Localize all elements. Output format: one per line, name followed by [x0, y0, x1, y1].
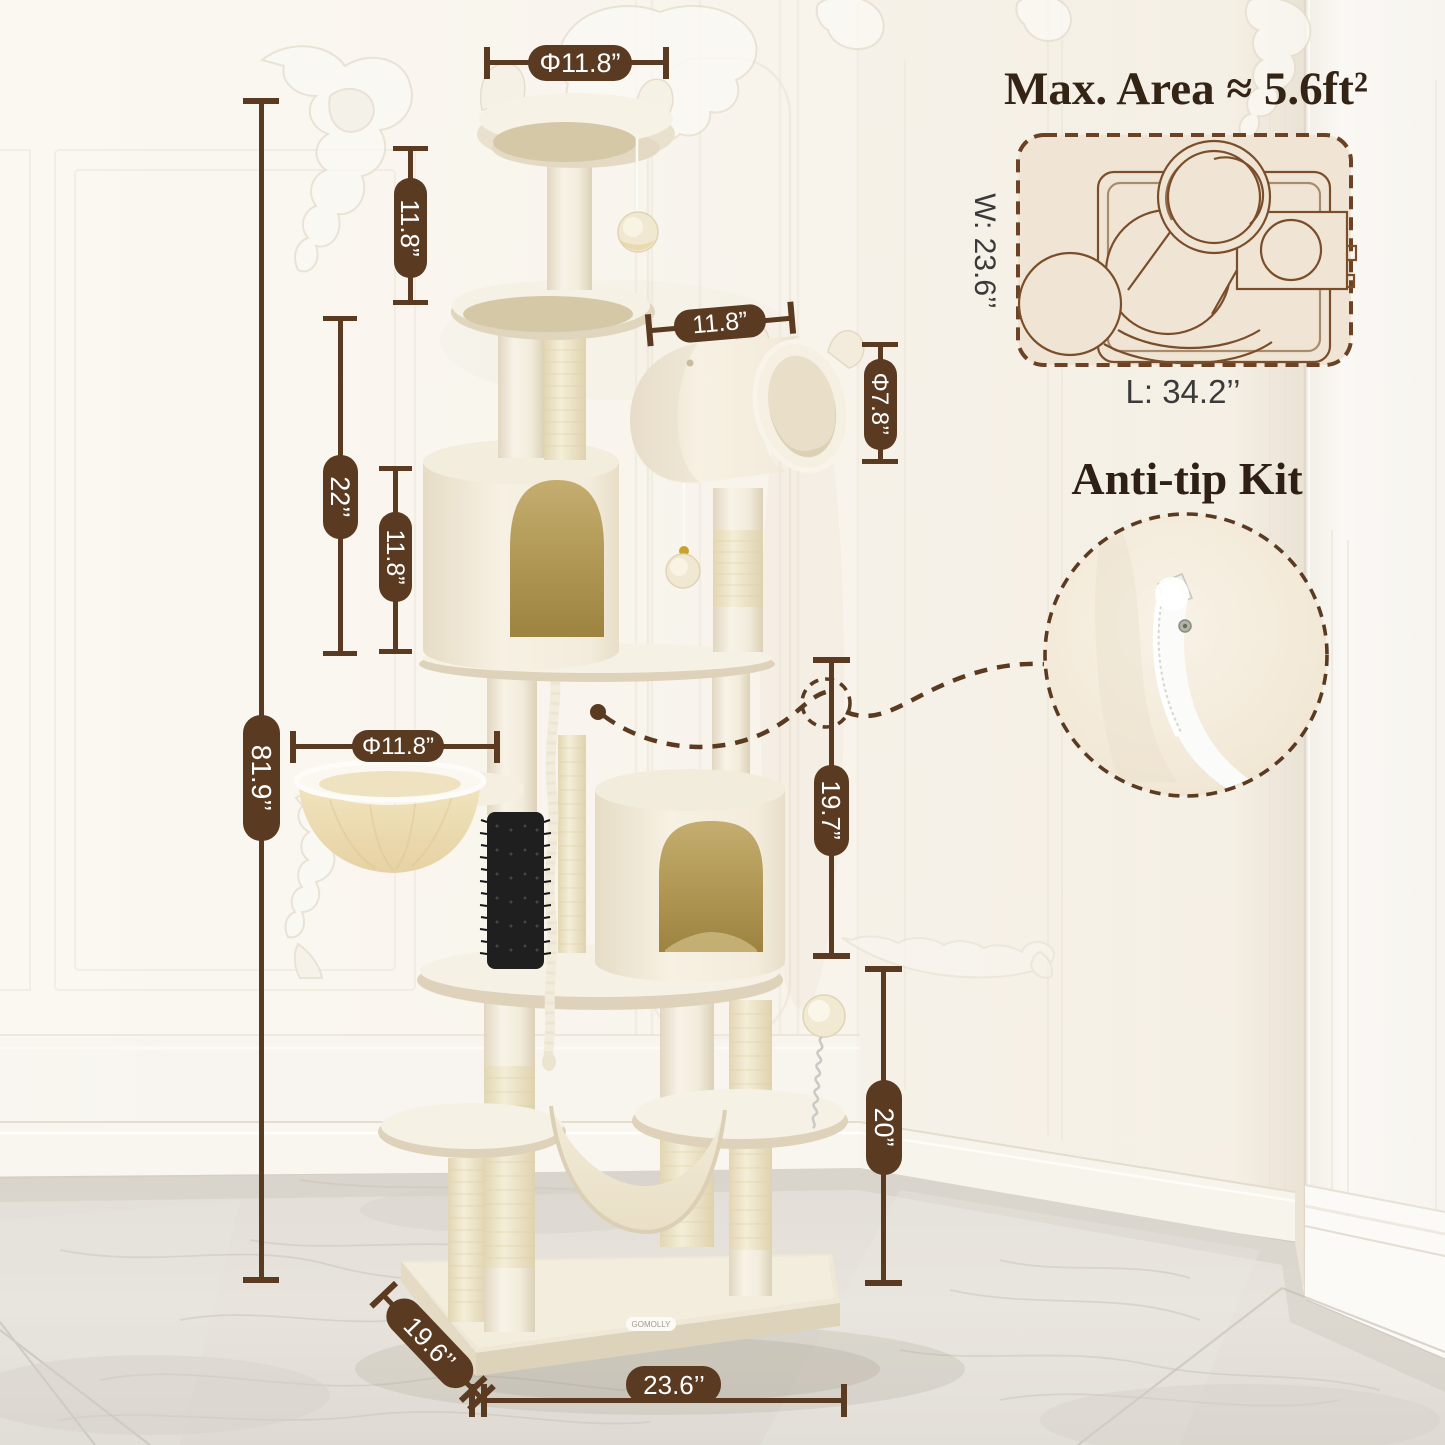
svg-text:23.6’’: 23.6’’: [643, 1370, 705, 1400]
svg-text:Φ11.8”: Φ11.8”: [539, 48, 620, 78]
svg-text:20”: 20”: [869, 1107, 899, 1146]
svg-text:Max. Area ≈ 5.6ft²: Max. Area ≈ 5.6ft²: [1004, 63, 1368, 115]
svg-text:L: 34.2’’: L: 34.2’’: [1126, 373, 1241, 410]
svg-text:19.7”: 19.7”: [816, 780, 846, 839]
svg-text:W: 23.6’’: W: 23.6’’: [968, 193, 1001, 309]
svg-text:11.8”: 11.8”: [395, 199, 425, 256]
svg-text:Φ7.8’’: Φ7.8’’: [866, 373, 893, 436]
svg-text:GOMOLLY: GOMOLLY: [632, 1320, 672, 1329]
svg-text:22’’: 22’’: [325, 476, 355, 518]
svg-text:11.8”: 11.8”: [691, 307, 748, 340]
svg-text:81.9’’: 81.9’’: [246, 745, 277, 811]
svg-text:11.8”: 11.8”: [381, 529, 409, 584]
svg-text:Anti-tip Kit: Anti-tip Kit: [1071, 453, 1303, 504]
svg-text:Φ11.8”: Φ11.8”: [362, 733, 434, 760]
